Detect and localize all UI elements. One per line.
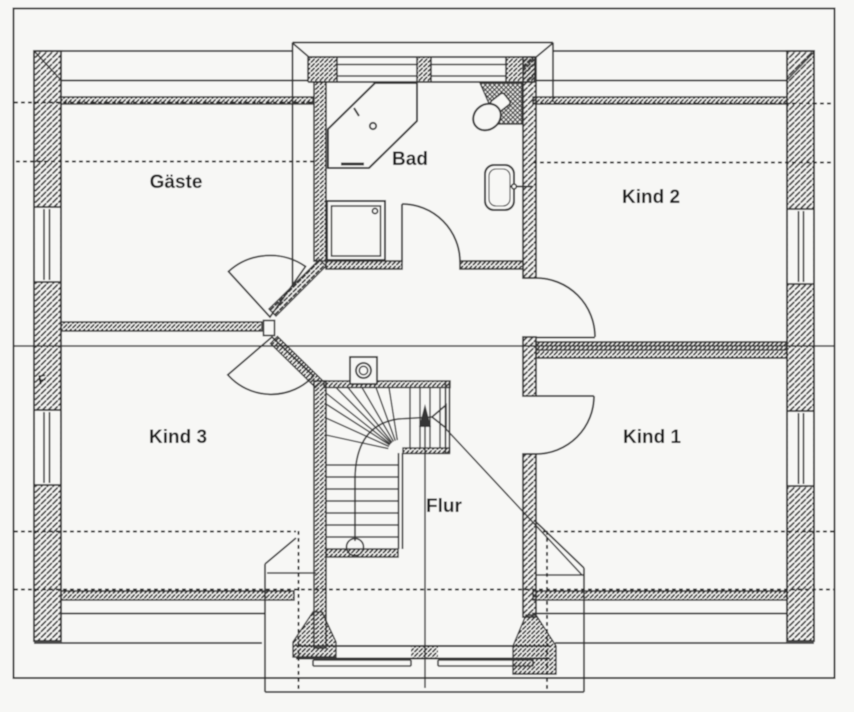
svg-text:Bad: Bad <box>392 149 428 170</box>
svg-text:Flur: Flur <box>426 496 462 517</box>
svg-text:Kind 3: Kind 3 <box>149 427 207 448</box>
svg-text:Kind 2: Kind 2 <box>622 187 680 208</box>
svg-text:Kind 1: Kind 1 <box>623 427 681 448</box>
svg-text:Gäste: Gäste <box>150 172 203 193</box>
